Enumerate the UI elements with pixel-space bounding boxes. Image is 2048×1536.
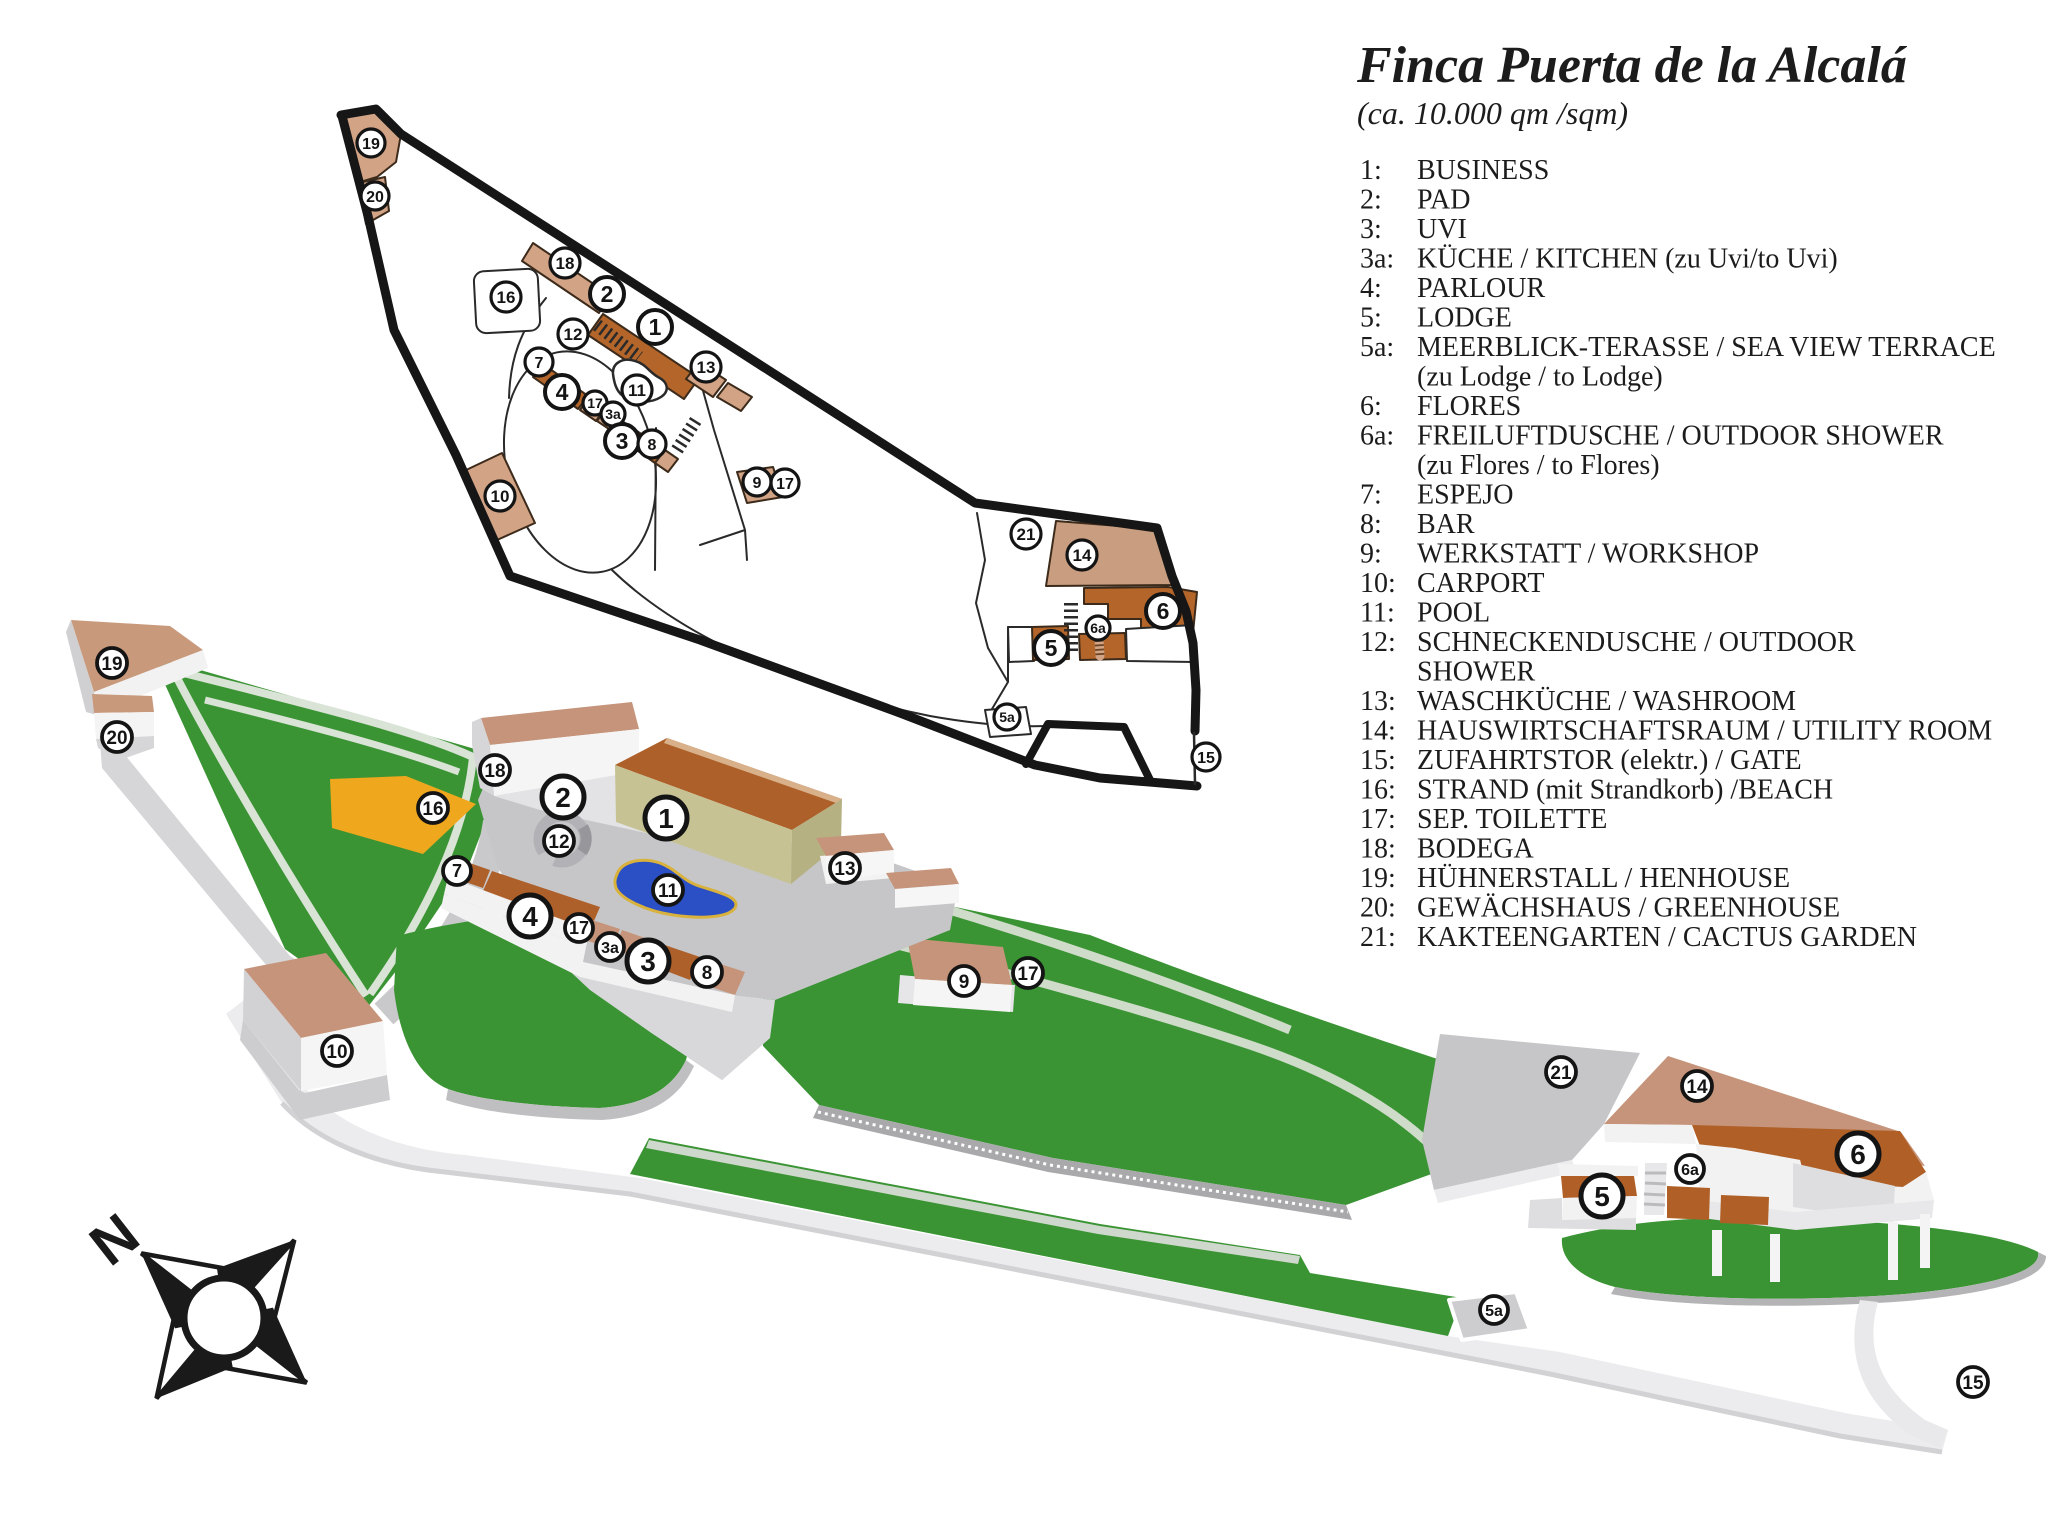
svg-text:4: 4	[522, 901, 538, 932]
svg-text:18: 18	[556, 254, 575, 273]
svg-text:12: 12	[548, 832, 569, 853]
svg-text:8: 8	[648, 437, 657, 454]
svg-text:6:: 6:	[1360, 391, 1382, 422]
svg-text:18: 18	[484, 761, 505, 782]
svg-text:15: 15	[1962, 1373, 1984, 1394]
svg-text:14: 14	[1073, 546, 1092, 565]
svg-text:3:: 3:	[1360, 214, 1382, 245]
svg-text:4: 4	[556, 379, 569, 405]
svg-text:10: 10	[326, 1042, 347, 1063]
svg-text:KAKTEENGARTEN / CACTUS GARDEN: KAKTEENGARTEN / CACTUS GARDEN	[1417, 922, 1917, 953]
svg-text:21: 21	[1550, 1063, 1572, 1084]
svg-text:(zu Lodge / to Lodge): (zu Lodge / to Lodge)	[1417, 362, 1663, 393]
svg-text:HAUSWIRTSCHAFTSRAUM / UTILITY: HAUSWIRTSCHAFTSRAUM / UTILITY ROOM	[1417, 716, 1992, 747]
svg-text:MEERBLICK-TERASSE / SEA VIEW T: MEERBLICK-TERASSE / SEA VIEW TERRACE	[1417, 332, 1996, 363]
svg-text:Finca Puerta de la Alcalá: Finca Puerta de la Alcalá	[1356, 37, 1908, 94]
svg-text:3a: 3a	[601, 940, 619, 957]
svg-text:3a:: 3a:	[1360, 244, 1394, 275]
svg-text:WASCHKÜCHE / WASHROOM: WASCHKÜCHE / WASHROOM	[1417, 686, 1796, 717]
svg-text:19: 19	[362, 136, 380, 153]
svg-text:13:: 13:	[1360, 686, 1396, 717]
svg-text:21:: 21:	[1360, 922, 1396, 953]
svg-text:10:: 10:	[1360, 568, 1396, 599]
svg-text:17: 17	[1017, 964, 1038, 985]
svg-text:13: 13	[697, 358, 716, 377]
svg-text:2:: 2:	[1360, 185, 1382, 216]
svg-text:8:: 8:	[1360, 509, 1382, 540]
svg-text:FLORES: FLORES	[1417, 391, 1521, 422]
svg-text:CARPORT: CARPORT	[1417, 568, 1544, 599]
svg-text:11:: 11:	[1360, 598, 1395, 629]
svg-text:SEP. TOILETTE: SEP. TOILETTE	[1417, 804, 1607, 835]
svg-text:12:: 12:	[1360, 627, 1396, 658]
svg-text:(zu Flores / to Flores): (zu Flores / to Flores)	[1417, 450, 1660, 481]
svg-text:9: 9	[959, 972, 970, 993]
svg-text:12: 12	[564, 325, 583, 344]
svg-text:SCHNECKENDUSCHE / OUTDOOR: SCHNECKENDUSCHE / OUTDOOR	[1417, 627, 1856, 658]
svg-text:3: 3	[616, 428, 629, 454]
svg-text:16: 16	[497, 288, 516, 307]
svg-text:18:: 18:	[1360, 834, 1396, 865]
svg-text:15:: 15:	[1360, 745, 1396, 776]
svg-text:14: 14	[1686, 1077, 1708, 1098]
svg-text:5: 5	[1045, 635, 1058, 661]
svg-text:PARLOUR: PARLOUR	[1417, 273, 1545, 304]
svg-text:WERKSTATT / WORKSHOP: WERKSTATT / WORKSHOP	[1417, 539, 1759, 570]
svg-text:7: 7	[535, 355, 544, 372]
svg-text:9:: 9:	[1360, 539, 1382, 570]
svg-text:20:: 20:	[1360, 893, 1396, 924]
svg-text:KÜCHE / KITCHEN (zu Uvi/to Uvi: KÜCHE / KITCHEN (zu Uvi/to Uvi)	[1417, 244, 1838, 275]
svg-text:14:: 14:	[1360, 716, 1396, 747]
svg-text:HÜHNERSTALL / HENHOUSE: HÜHNERSTALL / HENHOUSE	[1417, 863, 1790, 894]
svg-text:5a: 5a	[1485, 1303, 1503, 1320]
svg-text:3a: 3a	[605, 406, 621, 422]
svg-text:9: 9	[753, 475, 762, 492]
svg-text:15: 15	[1197, 750, 1215, 767]
svg-text:17: 17	[776, 476, 794, 493]
svg-text:6a: 6a	[1681, 1162, 1699, 1179]
svg-text:11: 11	[628, 381, 646, 400]
svg-text:5: 5	[1594, 1181, 1610, 1212]
svg-text:7:: 7:	[1360, 480, 1382, 511]
svg-text:4:: 4:	[1360, 273, 1382, 304]
svg-text:(ca. 10.000 qm /sqm): (ca. 10.000 qm /sqm)	[1357, 95, 1628, 131]
svg-text:FREILUFTDUSCHE / OUTDOOR SHOWE: FREILUFTDUSCHE / OUTDOOR SHOWER	[1417, 421, 1944, 452]
svg-text:1: 1	[658, 803, 674, 834]
svg-text:21: 21	[1017, 525, 1036, 544]
svg-text:5a: 5a	[999, 709, 1015, 725]
svg-text:16:: 16:	[1360, 775, 1396, 806]
svg-text:13: 13	[834, 859, 855, 880]
svg-text:8: 8	[702, 963, 713, 984]
svg-text:PAD: PAD	[1417, 185, 1470, 216]
svg-text:UVI: UVI	[1417, 214, 1467, 245]
svg-text:STRAND (mit Strandkorb) /BEACH: STRAND (mit Strandkorb) /BEACH	[1417, 775, 1833, 806]
svg-text:ZUFAHRTSTOR (elektr.) / GATE: ZUFAHRTSTOR (elektr.) / GATE	[1417, 745, 1802, 776]
svg-text:2: 2	[555, 782, 571, 813]
svg-text:19: 19	[101, 654, 122, 675]
svg-text:POOL: POOL	[1417, 598, 1490, 629]
svg-text:1:: 1:	[1360, 155, 1382, 186]
svg-text:2: 2	[601, 281, 614, 307]
svg-text:LODGE: LODGE	[1417, 303, 1512, 334]
svg-text:ESPEJO: ESPEJO	[1417, 480, 1513, 511]
svg-text:16: 16	[422, 799, 443, 820]
svg-text:BAR: BAR	[1417, 509, 1475, 540]
svg-text:17:: 17:	[1360, 804, 1396, 835]
svg-text:3: 3	[640, 946, 656, 977]
svg-text:5:: 5:	[1360, 303, 1382, 334]
svg-text:11: 11	[658, 881, 679, 902]
svg-text:6: 6	[1157, 598, 1170, 624]
svg-text:6: 6	[1850, 1139, 1866, 1170]
svg-text:17: 17	[569, 918, 589, 938]
svg-text:20: 20	[366, 189, 384, 206]
svg-text:BODEGA: BODEGA	[1417, 834, 1534, 865]
svg-text:19:: 19:	[1360, 863, 1396, 894]
svg-text:5a:: 5a:	[1360, 332, 1394, 363]
svg-text:6a:: 6a:	[1360, 421, 1394, 452]
svg-text:7: 7	[452, 861, 462, 881]
svg-text:6a: 6a	[1090, 620, 1106, 636]
svg-text:SHOWER: SHOWER	[1417, 657, 1536, 688]
svg-text:10: 10	[491, 487, 510, 506]
svg-text:GEWÄCHSHAUS / GREENHOUSE: GEWÄCHSHAUS / GREENHOUSE	[1417, 893, 1840, 924]
svg-text:BUSINESS: BUSINESS	[1417, 155, 1549, 186]
svg-text:20: 20	[106, 728, 127, 749]
svg-text:1: 1	[649, 314, 662, 340]
